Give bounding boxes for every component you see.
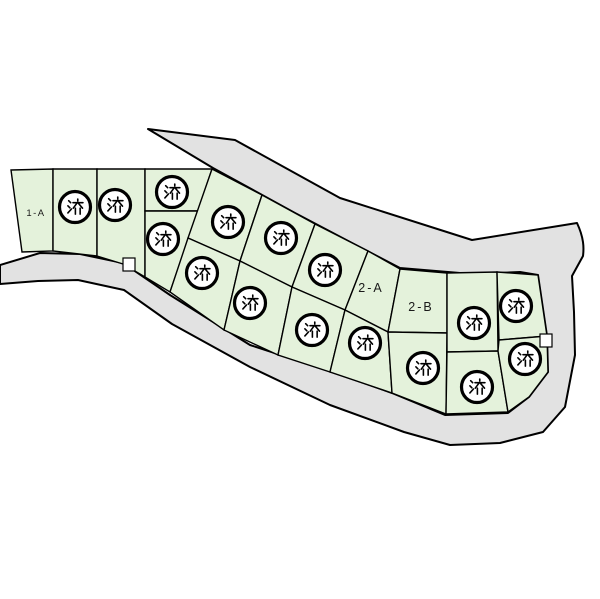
sold-stamp-text: 済 (315, 259, 335, 282)
boundary-notch (540, 334, 552, 347)
sold-stamp: 済 (148, 224, 179, 255)
sold-stamp-text: 済 (240, 292, 260, 315)
sold-stamp-text: 済 (271, 227, 291, 250)
sold-stamp-text: 済 (467, 376, 487, 399)
sold-stamp: 済 (310, 255, 341, 286)
boundary-notch (123, 258, 135, 271)
plot-label-1-A: 1-A (26, 208, 45, 219)
sold-stamp: 済 (213, 207, 244, 238)
sold-stamp-text: 済 (162, 181, 182, 204)
sold-stamp-text: 済 (355, 332, 375, 355)
plot-map-canvas: 済済済済済済済済済済済済済済済済 1-A2-A2-B (0, 0, 600, 599)
sold-stamp-text: 済 (506, 295, 526, 318)
sold-stamp-text: 済 (218, 211, 238, 234)
plot-label-2-A: 2-A (358, 281, 383, 295)
sold-stamp: 済 (408, 353, 439, 384)
sold-stamp: 済 (501, 291, 532, 322)
sold-stamp: 済 (462, 372, 493, 403)
subdivision-map: 済済済済済済済済済済済済済済済済 1-A2-A2-B (0, 0, 600, 599)
sold-stamp-text: 済 (413, 357, 433, 380)
plot-label-2-B: 2-B (408, 300, 433, 314)
sold-stamp-text: 済 (464, 312, 484, 335)
sold-stamp: 済 (459, 308, 490, 339)
sold-stamp: 済 (266, 223, 297, 254)
sold-stamp: 済 (297, 315, 328, 346)
sold-stamp: 済 (157, 177, 188, 208)
sold-stamp: 済 (187, 258, 218, 289)
sold-stamp: 済 (60, 192, 91, 223)
sold-stamp-text: 済 (105, 194, 125, 217)
sold-stamp-text: 済 (192, 262, 212, 285)
sold-stamp-text: 済 (302, 319, 322, 342)
sold-stamp: 済 (100, 190, 131, 221)
sold-stamp: 済 (510, 344, 541, 375)
sold-stamp: 済 (350, 328, 381, 359)
sold-stamp-text: 済 (153, 228, 173, 251)
sold-stamp-text: 済 (515, 348, 535, 371)
sold-stamp-text: 済 (65, 196, 85, 219)
sold-stamp: 済 (235, 288, 266, 319)
